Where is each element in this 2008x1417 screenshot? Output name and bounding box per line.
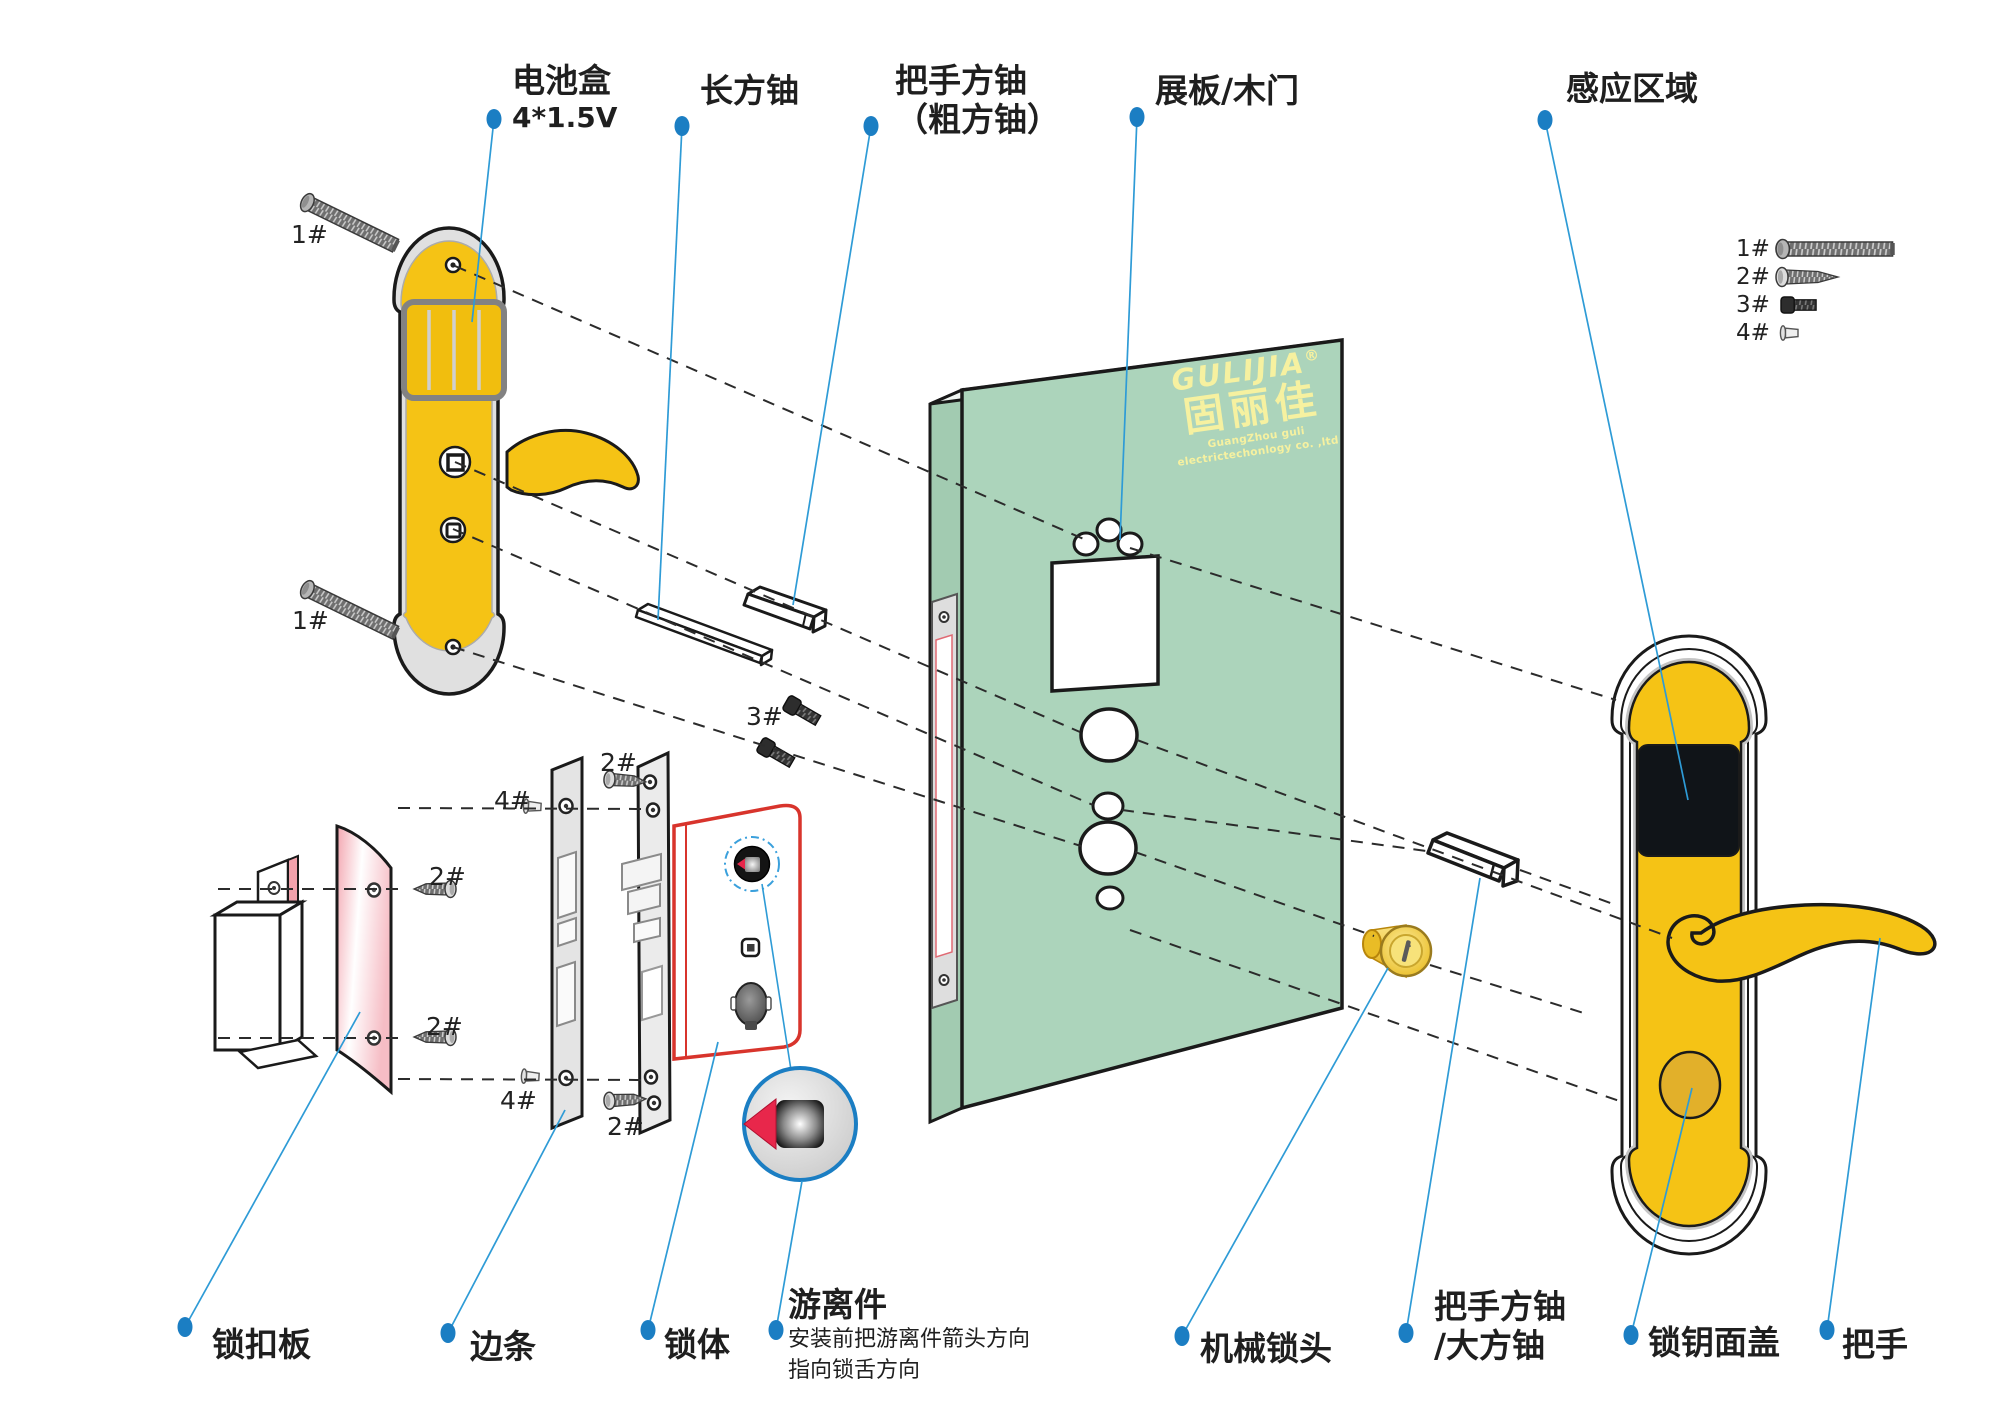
key-cover-cap (1660, 1052, 1720, 1118)
legend-screw-3 (1781, 297, 1816, 313)
door-panel (930, 340, 1342, 1122)
mark-screw1-top: 1# (291, 220, 328, 249)
door-cutout-rectangle (1052, 556, 1158, 691)
mark-screw1-bottom: 1# (292, 606, 329, 635)
door-edge-mortise-slot (936, 635, 952, 957)
handle-spindle-right (1428, 833, 1518, 886)
edge-strip-cutout-1 (558, 852, 576, 918)
label-battery-box: 电池盒 4*1.5V (512, 62, 617, 134)
dust-box-side (280, 902, 302, 1050)
long-spindle-bar (636, 604, 772, 665)
legend-screw-4 (1780, 326, 1798, 340)
label-door: 展板/木门 (1155, 72, 1299, 111)
sensor-area (1638, 745, 1739, 856)
mark-screw2-strike-top: 2# (429, 862, 466, 891)
bolt-3-upper (782, 695, 823, 728)
label-handle-spindle-top: 把手方铀 （粗方铀） (895, 62, 1060, 140)
exploded-lock-diagram: GULIJIA® 固丽佳 GuangZhou guli electrictech… (0, 0, 2008, 1417)
mark-screw2-strip-top: 2# (600, 748, 637, 777)
legend-label-4: 4# (1736, 320, 1770, 346)
mark-screw2-strike-bottom: 2# (426, 1012, 463, 1041)
registered-mark: ® (1303, 345, 1322, 365)
edge-strip-cutout-2 (558, 918, 576, 946)
legend-screw-2 (1776, 268, 1838, 287)
legend-screw-1 (1776, 240, 1895, 259)
strike-plate-assembly (215, 826, 456, 1092)
lock-body (674, 695, 822, 1059)
interior-panel (298, 191, 639, 694)
label-strike-plate: 锁扣板 (212, 1326, 311, 1365)
diagram-canvas (0, 0, 2008, 1417)
dust-box-front (215, 915, 280, 1050)
edge-strip-and-faceplate (521, 753, 670, 1133)
floating-part-square (745, 857, 760, 872)
door-hole-large-upper (1081, 709, 1137, 761)
label-mechanical-cylinder: 机械锁头 (1200, 1330, 1332, 1369)
door-hole-small-middle (1097, 519, 1121, 541)
legend-label-2: 2# (1736, 264, 1770, 290)
label-handle: 把手 (1842, 1326, 1908, 1365)
bolt-3-lower (756, 737, 797, 770)
label-edge-strip: 边条 (470, 1328, 536, 1367)
label-floating-part: 游离件 安装前把游离件箭头方向 指向锁舌方向 (788, 1286, 1030, 1387)
label-key-cover: 锁钥面盖 (1648, 1324, 1780, 1363)
door-hole-small-bottom (1097, 887, 1123, 909)
legend-label-1: 1# (1736, 236, 1770, 262)
pin-4-bottom (521, 1069, 539, 1084)
door-hole-medium (1093, 793, 1123, 819)
door-hole-small-right (1118, 533, 1142, 555)
deadbolt (642, 966, 662, 1020)
mark-bolt3: 3# (746, 702, 783, 731)
legend-label-3: 3# (1736, 292, 1770, 318)
exterior-panel (1612, 636, 1935, 1254)
screw-legend-icons (1776, 240, 1895, 341)
strike-plate-curved (337, 826, 391, 1092)
interior-handle (507, 430, 638, 494)
label-handle-spindle-right: 把手方铀 /大方铀 (1434, 1288, 1566, 1366)
mark-pin4-bottom: 4# (500, 1086, 537, 1115)
label-lock-body: 锁体 (664, 1326, 730, 1365)
lock-body-cylinder-hole (735, 983, 767, 1025)
mark-pin4-top: 4# (494, 786, 531, 815)
handle-spindle-thick (744, 587, 826, 632)
mark-screw2-strip-bottom: 2# (607, 1112, 644, 1141)
edge-strip-cutout-3 (557, 962, 575, 1026)
lock-body-case (674, 806, 800, 1060)
magnifier-square (776, 1100, 824, 1148)
mechanical-cylinder (1363, 925, 1431, 977)
lock-body-square-port-inner (747, 944, 755, 952)
label-sensor-area: 感应区域 (1566, 70, 1698, 109)
label-long-spindle: 长方铀 (700, 72, 799, 111)
door-hole-large-lower (1080, 822, 1136, 874)
